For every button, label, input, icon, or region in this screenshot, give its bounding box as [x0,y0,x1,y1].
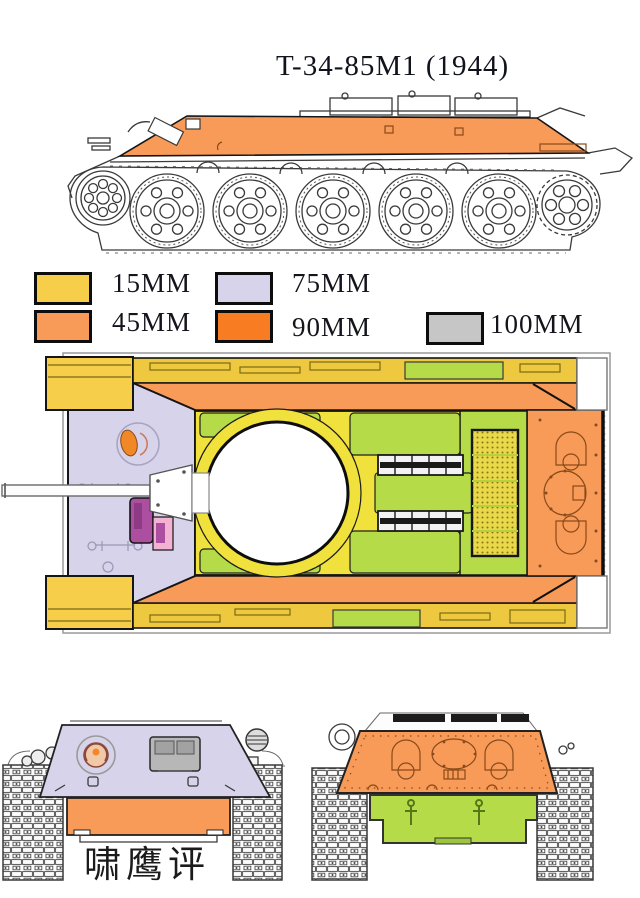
front-glacis-armor [40,721,270,797]
legend-label-100mm: 100MM [490,309,584,340]
gun-mantlet [150,465,192,521]
rear-deck-edge [365,713,537,731]
legend-label-75mm: 75MM [292,268,371,299]
legend-label-45mm: 45MM [112,307,191,338]
legend-swatch-15mm [34,272,92,305]
legend-label-15mm: 15MM [112,268,191,299]
side-view-drawing [0,86,640,264]
intake-mesh-grille [472,430,518,556]
rear-fittings [559,743,574,754]
legend-swatch-90mm [215,310,273,343]
rear-deck-armor [527,384,603,602]
drive-sprocket [537,175,597,235]
lower-rear-plate [370,795,537,844]
legend-swatch-75mm [215,272,273,305]
side-upper-hull-armor [120,116,588,156]
rear-mudguard-top [577,358,607,410]
rear-step [435,838,471,844]
legend-label-90mm: 90MM [292,312,371,343]
turret-ring [193,409,361,577]
upper-rear-armor [337,731,557,793]
top-view-drawing [0,345,640,645]
driver-hatch-front [150,737,200,771]
road-wheels [130,174,536,248]
idler-wheel [76,171,130,225]
rear-view-drawing [305,698,640,885]
headlight [246,729,268,751]
legend-swatch-100mm [426,312,484,345]
rear-mudguard-bottom [577,576,607,628]
page-title: T-34-85M1 (1944) [276,50,509,83]
spare-roadwheel [329,724,355,750]
legend-swatch-45mm [34,310,92,343]
spare-roadwheel-hub [335,730,349,744]
watermark-text: 啸鹰评 [84,834,210,888]
armor-diagram-page: T-34-85M1 (1944) [0,0,640,898]
